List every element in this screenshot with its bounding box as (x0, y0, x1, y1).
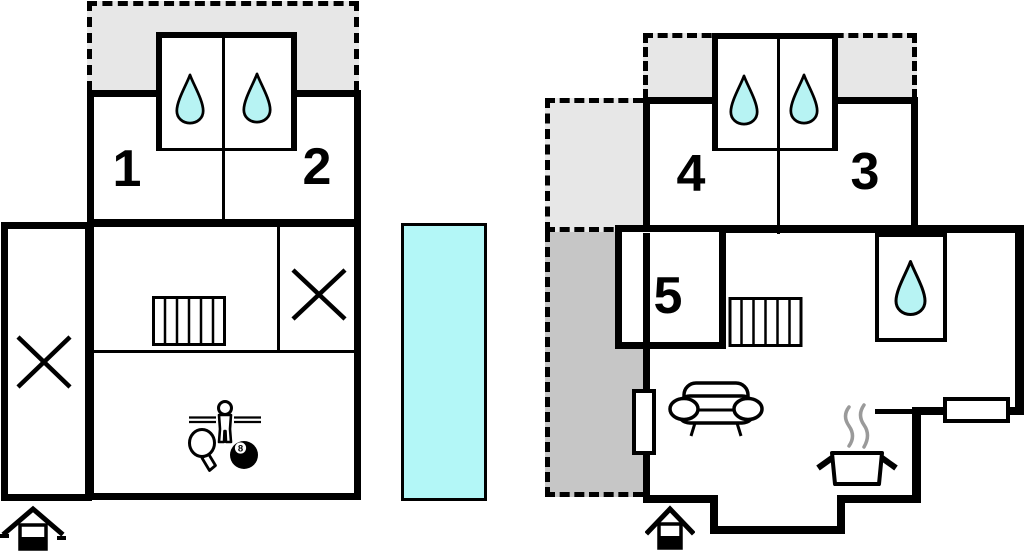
wall-left-lower-right-plan (643, 233, 650, 393)
cross-mark-icon (290, 267, 348, 322)
radiator (943, 397, 1010, 423)
wall-kitchen-vertical (912, 409, 921, 503)
stairs-icon (152, 296, 226, 346)
water-drop-icon (894, 259, 927, 317)
room-3-label: 3 (851, 146, 880, 198)
wall-step-bottom (710, 526, 845, 534)
table-tennis-paddle-icon (190, 430, 216, 471)
wall-bathroom-room-divider-right (777, 39, 780, 234)
room-1-label: 1 (113, 143, 142, 195)
floorplan-image: 1 2 8 (0, 0, 1024, 551)
game-room-icon: 8 (185, 395, 265, 475)
wall-bottom-right-a (912, 407, 943, 415)
swimming-pool (401, 223, 487, 501)
room-5-label: 5 (654, 270, 683, 322)
sofa-icon (668, 380, 764, 440)
wall-bottom-1-right-plan (643, 495, 718, 503)
entrance-house-icon (645, 505, 695, 550)
billiard-ball-number: 8 (238, 444, 243, 455)
room-4-label: 4 (677, 148, 706, 200)
wall-bottom-2-right-plan (837, 495, 920, 503)
wall-right-outer (1015, 225, 1024, 415)
wall-bathroom-room-divider-left (222, 38, 225, 222)
water-drop-icon (242, 70, 272, 126)
cross-mark-icon (15, 334, 73, 390)
wall-hall-storage-divider-left (277, 227, 280, 353)
stairs-icon (728, 297, 803, 347)
billiard-8-ball-icon: 8 (230, 441, 258, 469)
water-drop-icon (789, 71, 819, 127)
wall-hall-gameroom-divider-left (91, 350, 357, 353)
entrance-house-icon (0, 505, 66, 551)
cooking-pot-icon (812, 403, 902, 488)
water-drop-icon (175, 71, 205, 127)
water-drop-icon (729, 72, 759, 128)
room-2-label: 2 (303, 141, 332, 193)
terrace-dashed-area-right-mid (545, 98, 643, 232)
radiator (632, 389, 656, 455)
